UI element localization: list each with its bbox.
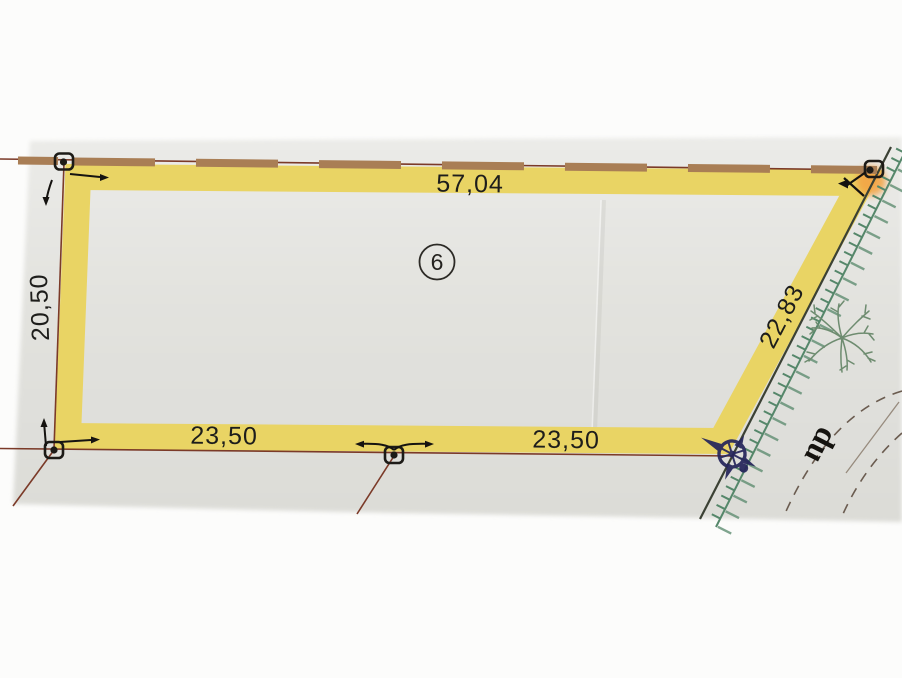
dimension-label-bottom-left: 23,50: [190, 422, 258, 451]
parcel-number: 6: [431, 249, 444, 275]
survey-plan-photo: 6 57,04 20,50 23,50 23,50 22,83 du: [0, 0, 902, 678]
survey-plan-canvas: 6 57,04 20,50 23,50 23,50 22,83 du: [0, 0, 902, 678]
dimension-label-bottom-right: 23,50: [532, 426, 600, 455]
dimension-label-left: 20,50: [25, 273, 55, 341]
dimension-label-top: 57,04: [436, 170, 504, 199]
